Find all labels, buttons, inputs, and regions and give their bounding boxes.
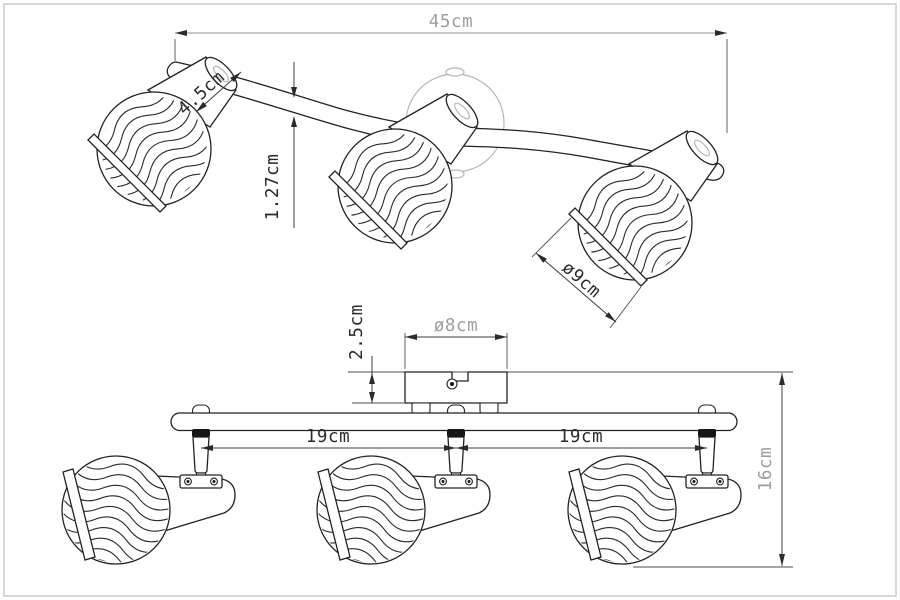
- dim-label-fixture-height: 16cm: [756, 447, 776, 492]
- front-view-lamp-middle: [266, 419, 490, 598]
- dim-label-spacing-right: 19cm: [559, 427, 604, 447]
- front-view-lamp-left: [11, 419, 235, 598]
- dim-canopy-height: 2.5cm: [347, 304, 404, 403]
- support-bar: [171, 413, 737, 431]
- dim-label-spacing-left: 19cm: [306, 427, 351, 447]
- technical-drawing-page: 45cm 4.5cm 1.27cm ø9cm: [0, 0, 900, 600]
- dim-label-overall-width: 45cm: [429, 12, 474, 32]
- front-elevation-view: 2.5cm ø8cm 19cm 19cm: [11, 304, 793, 598]
- dim-label-arm-thickness: 1.27cm: [263, 154, 283, 221]
- top-view-lamp-left: [41, 38, 265, 257]
- dim-label-canopy-diameter: ø8cm: [434, 316, 479, 336]
- fixture-dimension-drawing: 45cm 4.5cm 1.27cm ø9cm: [0, 0, 900, 600]
- front-view-lamp-right: [517, 419, 741, 598]
- top-perspective-view: 45cm 4.5cm 1.27cm ø9cm: [41, 12, 746, 331]
- dim-canopy-diameter: ø8cm: [405, 316, 507, 369]
- dim-label-canopy-height: 2.5cm: [347, 304, 367, 360]
